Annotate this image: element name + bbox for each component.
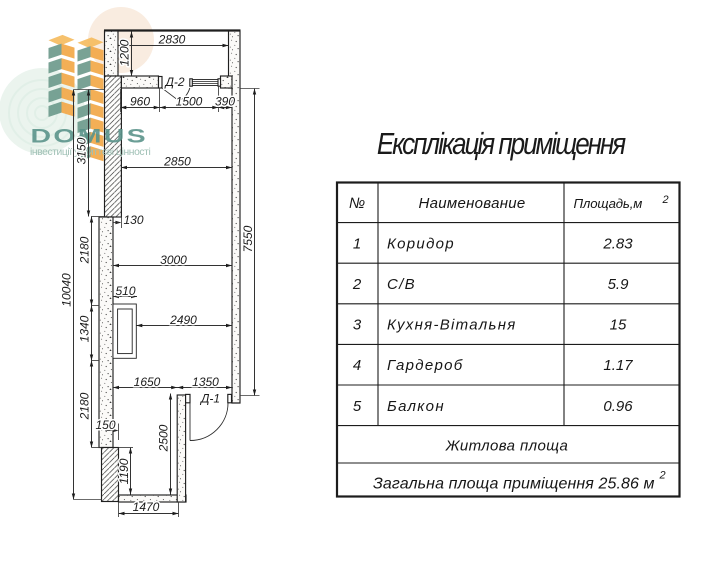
svg-text:Балкон: Балкон — [387, 398, 445, 415]
svg-text:Кухня-Вітальня: Кухня-Вітальня — [387, 317, 517, 334]
svg-text:№: № — [349, 195, 365, 212]
svg-text:Експлікація приміщення: Експлікація приміщення — [377, 126, 626, 160]
svg-text:3: 3 — [353, 317, 362, 334]
svg-text:Коридор: Коридор — [387, 236, 455, 253]
svg-text:Площадь,м: Площадь,м — [574, 196, 643, 211]
svg-text:1: 1 — [353, 236, 361, 253]
svg-text:2: 2 — [659, 470, 666, 482]
svg-text:1.17: 1.17 — [603, 357, 633, 374]
svg-text:2: 2 — [662, 194, 669, 206]
svg-text:0.96: 0.96 — [603, 398, 633, 415]
svg-text:2: 2 — [352, 276, 362, 293]
svg-text:5: 5 — [353, 398, 362, 415]
svg-text:2.83: 2.83 — [602, 236, 633, 253]
svg-text:Загальна площа приміщення 25.8: Загальна площа приміщення 25.86 м — [373, 476, 655, 493]
svg-text:Гардероб: Гардероб — [387, 357, 464, 374]
svg-text:С/В: С/В — [387, 276, 416, 293]
svg-text:5.9: 5.9 — [608, 276, 630, 293]
svg-text:Житлова площа: Житлова площа — [445, 438, 569, 455]
svg-text:15: 15 — [610, 317, 627, 334]
svg-text:Наименование: Наименование — [418, 195, 525, 212]
svg-text:4: 4 — [353, 357, 361, 374]
